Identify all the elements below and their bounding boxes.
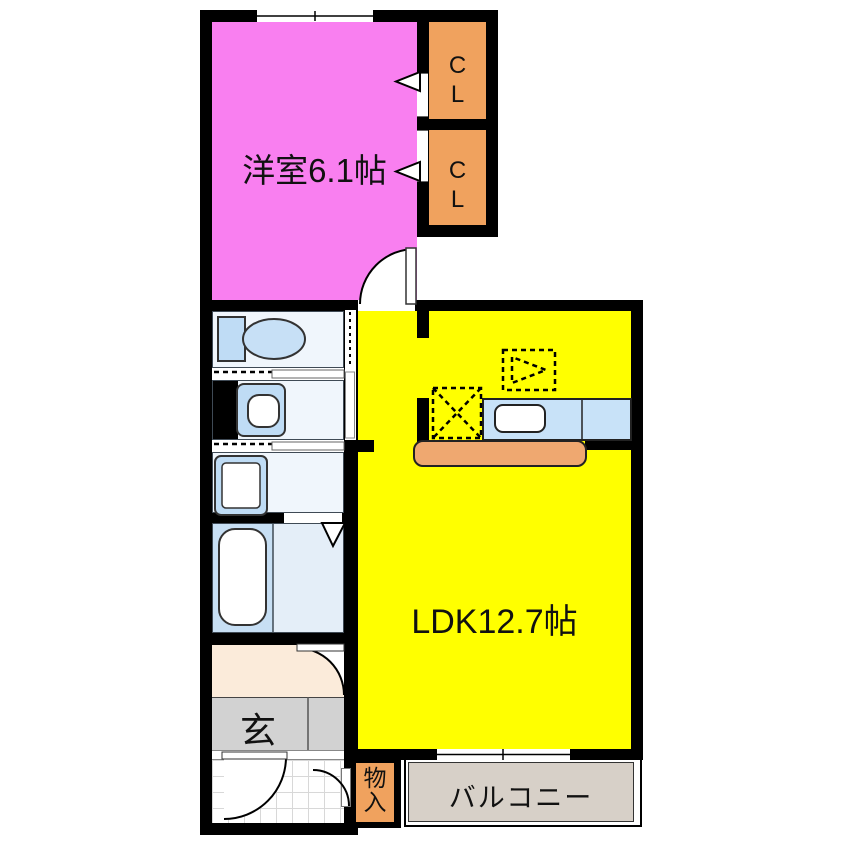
bedroom-window-icon [257, 11, 373, 21]
washing-machine-icon [215, 456, 267, 515]
kitchen-counter [483, 399, 631, 440]
washbasin-icon [237, 384, 285, 436]
ldk-window-icon [437, 749, 570, 760]
ldk-label: LDK12.7帖 [358, 594, 631, 643]
symbol-layer [0, 0, 846, 846]
entrance-label: 玄 [212, 702, 304, 754]
storage-door-icon [313, 770, 349, 806]
storage-label: 物入 [362, 766, 388, 815]
closet-lower-label: CL [444, 157, 471, 215]
bedroom-door-icon [360, 248, 416, 304]
bedroom-label: 洋室6.1帖 [212, 144, 417, 192]
kitchen-base-counter [414, 441, 586, 466]
floorplan-canvas: 洋室6.1帖 LDK12.7帖 CL CL 玄 物入 バルコニー [0, 0, 846, 846]
toilet-icon [218, 317, 305, 361]
closet-upper-label: CL [444, 52, 471, 110]
cupboard-space-icon [503, 350, 555, 390]
refrigerator-space-icon [433, 388, 481, 438]
bathtub-icon [219, 523, 273, 633]
balcony-label: バルコニー [408, 776, 634, 815]
bath-folding-door-icon [322, 523, 345, 546]
hallway-door-icon [297, 644, 344, 695]
entrance-door-icon [222, 752, 287, 819]
